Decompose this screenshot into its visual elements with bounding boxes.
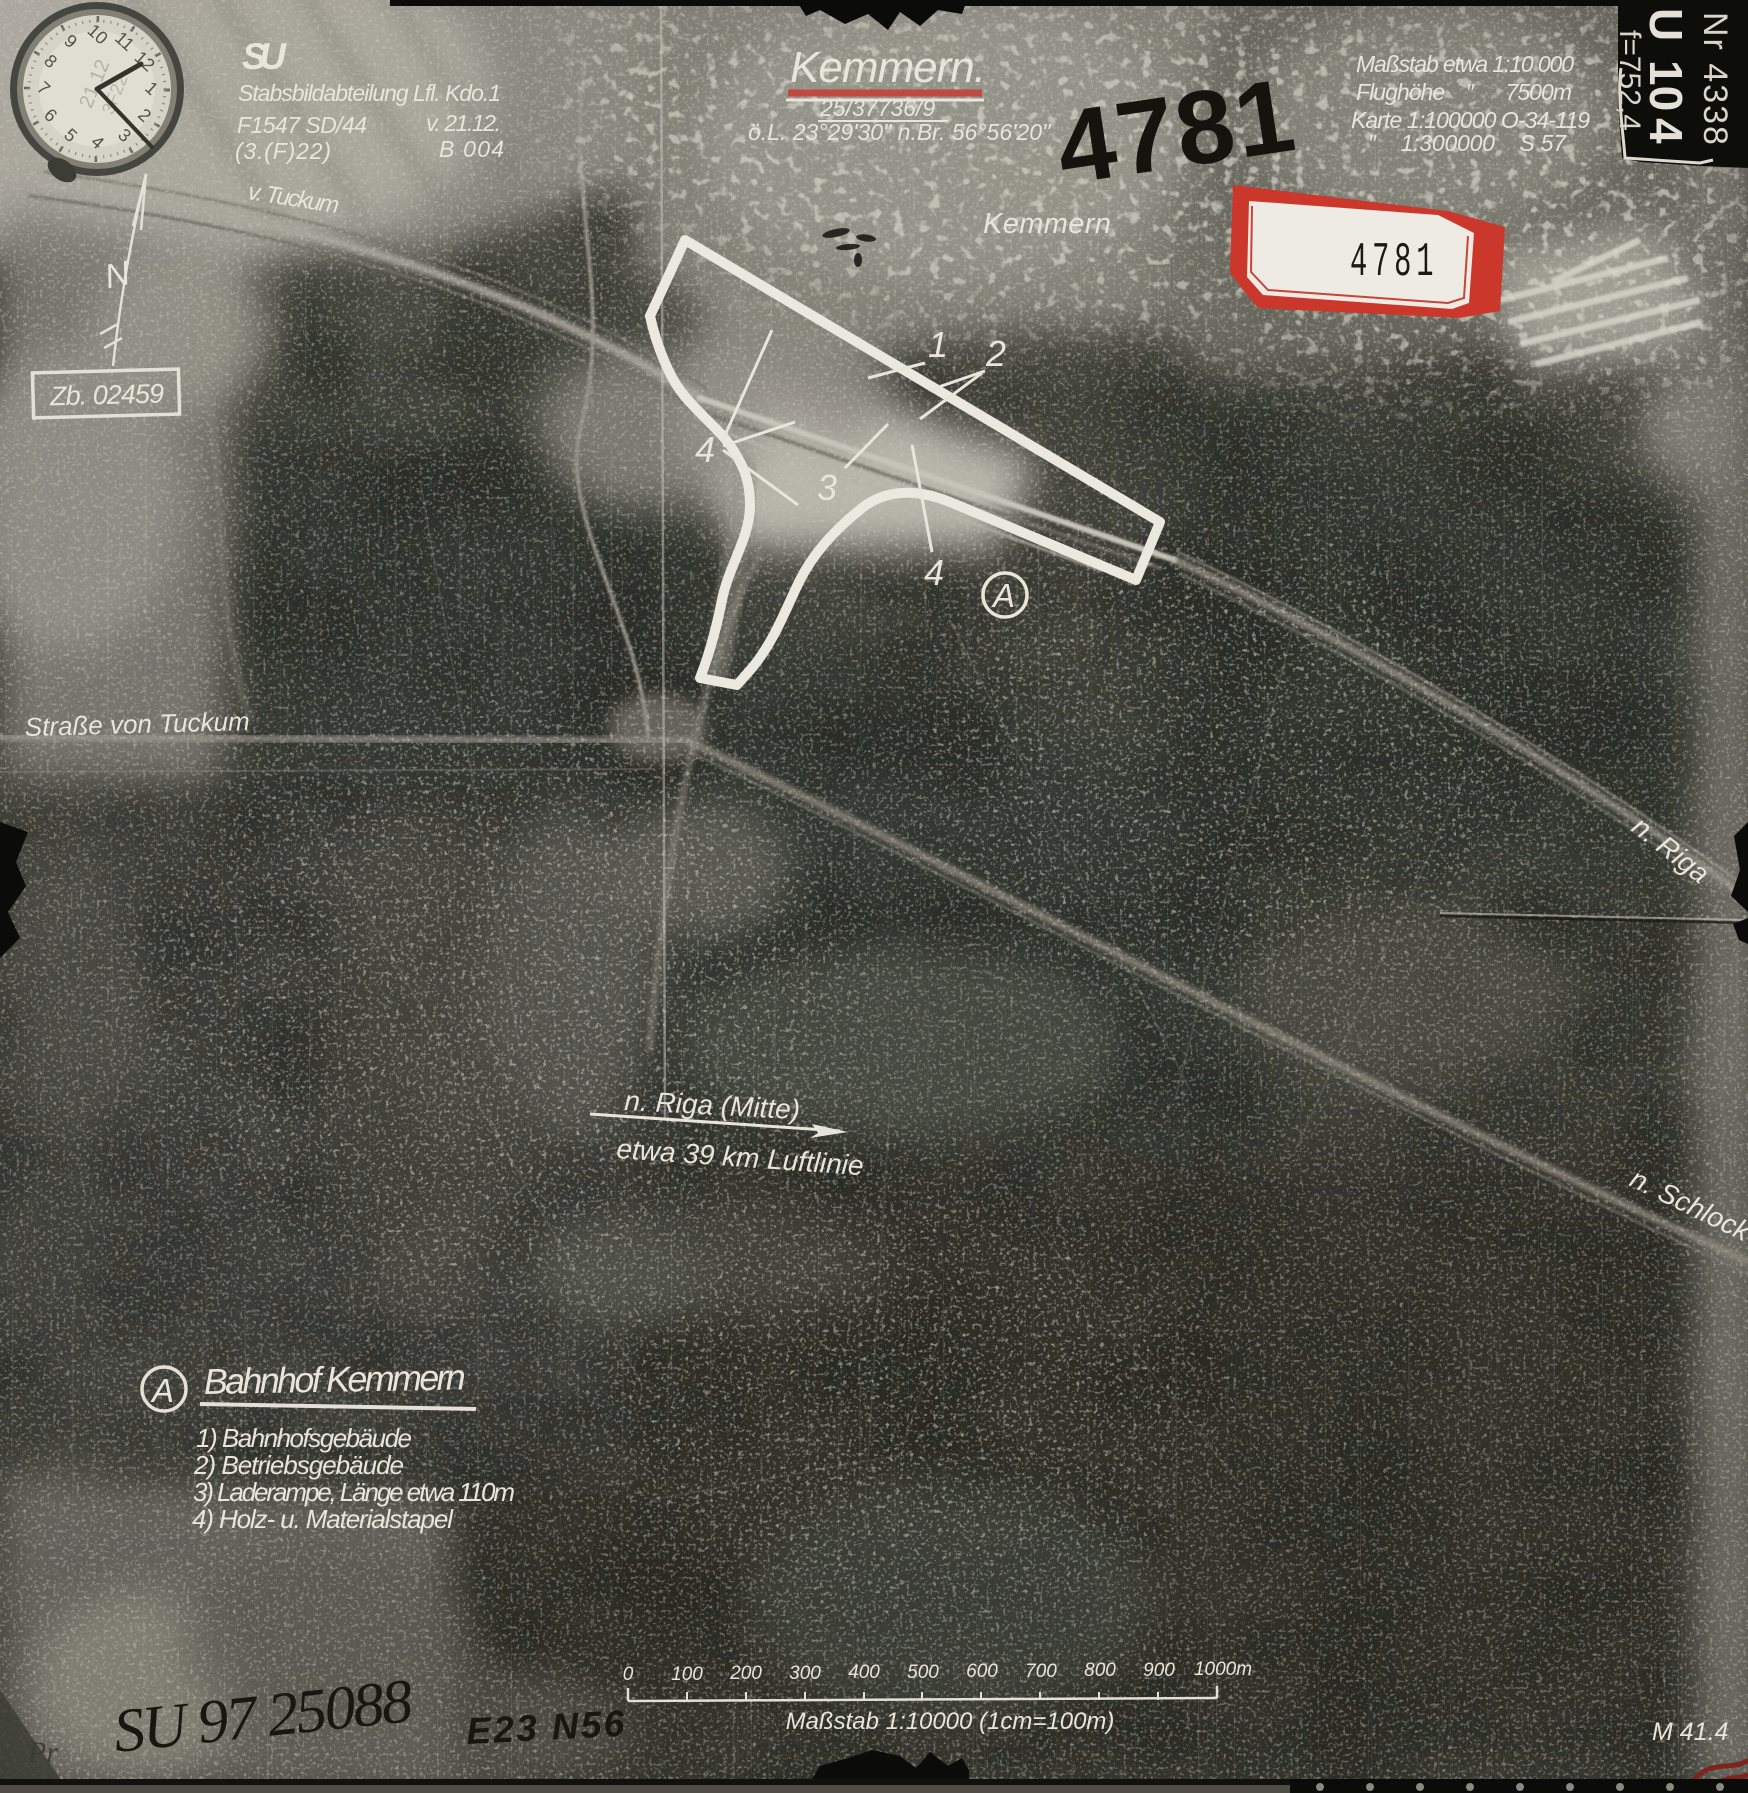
svg-text:3) Laderampe, Länge etwa 110m: 3) Laderampe, Länge etwa 110m xyxy=(193,1477,515,1507)
svg-text:v. 21.12.: v. 21.12. xyxy=(426,110,501,136)
svg-text:1) Bahnhofsgebäude: 1) Bahnhofsgebäude xyxy=(196,1423,412,1453)
svg-text:700: 700 xyxy=(1025,1661,1057,1682)
svg-text:2: 2 xyxy=(985,333,1006,374)
svg-text:ö.L. 23°29'30" n.Br. 56°56'20": ö.L. 23°29'30" n.Br. 56°56'20" xyxy=(748,119,1052,145)
svg-text:3: 3 xyxy=(817,467,837,508)
svg-text:Kemmern: Kemmern xyxy=(983,208,1111,240)
svg-text:100: 100 xyxy=(671,1664,703,1685)
svg-text:1: 1 xyxy=(928,324,948,365)
svg-text:Kemmern.: Kemmern. xyxy=(790,43,986,92)
svg-text:300: 300 xyxy=(789,1663,821,1684)
svg-text:Nr 4338: Nr 4338 xyxy=(1696,12,1734,147)
svg-text:U: U xyxy=(1640,8,1692,41)
svg-text:4: 4 xyxy=(695,429,715,470)
svg-text:0: 0 xyxy=(623,1664,634,1685)
svg-text:SU: SU xyxy=(242,36,287,77)
svg-text:Maßstab etwa 1:10 000: Maßstab etwa 1:10 000 xyxy=(1356,51,1574,77)
svg-text:M 41.4: M 41.4 xyxy=(1652,1718,1728,1746)
svg-text:A: A xyxy=(150,1372,174,1409)
svg-text:4781: 4781 xyxy=(1350,235,1438,290)
svg-text:Flughöhe ″ 7500m: Flughöhe ″ 7500m xyxy=(1356,79,1572,105)
svg-text:1000m: 1000m xyxy=(1194,1659,1252,1680)
svg-text:Maßstab 1:10000 (1cm=100m): Maßstab 1:10000 (1cm=100m) xyxy=(786,1708,1115,1735)
svg-text:900: 900 xyxy=(1143,1660,1175,1681)
svg-text:25/37736/9: 25/37736/9 xyxy=(819,95,935,121)
svg-text:Bahnhof Kemmern: Bahnhof Kemmern xyxy=(203,1356,466,1402)
svg-text:800: 800 xyxy=(1084,1660,1116,1681)
svg-text:4: 4 xyxy=(924,552,944,593)
svg-text:10: 10 xyxy=(1640,60,1692,111)
svg-text:2) Betriebsgebäude: 2) Betriebsgebäude xyxy=(193,1450,404,1480)
svg-text:4: 4 xyxy=(1640,118,1692,144)
svg-text:″ 1:300000 S 57: ″ 1:300000 S 57 xyxy=(1368,130,1567,156)
svg-text:B 004: B 004 xyxy=(439,136,504,162)
svg-text:f=752,4: f=752,4 xyxy=(1613,30,1646,131)
svg-text:Stabsbildabteilung Lfl. Kdo.1: Stabsbildabteilung Lfl. Kdo.1 xyxy=(238,80,501,106)
svg-text:4) Holz- u. Materialstapel: 4) Holz- u. Materialstapel xyxy=(192,1504,454,1534)
svg-text:Zb. 02459: Zb. 02459 xyxy=(49,378,165,411)
svg-text:F1547 SD/44: F1547 SD/44 xyxy=(237,112,367,138)
svg-text:400: 400 xyxy=(848,1662,880,1683)
svg-text:500: 500 xyxy=(907,1662,939,1683)
svg-text:Straße von Tuckum: Straße von Tuckum xyxy=(24,706,250,742)
svg-text:A: A xyxy=(991,577,1015,614)
svg-text:600: 600 xyxy=(966,1661,998,1682)
svg-text:200: 200 xyxy=(729,1663,762,1684)
svg-text:(3.(F)22): (3.(F)22) xyxy=(235,138,331,164)
